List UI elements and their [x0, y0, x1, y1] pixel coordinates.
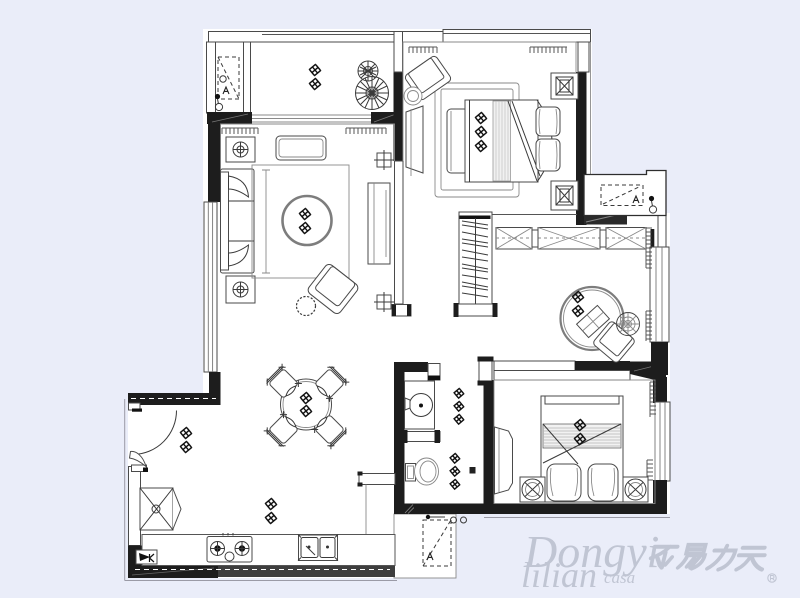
- svg-text:casa: casa: [604, 568, 635, 587]
- svg-text:lilian: lilian: [521, 555, 597, 595]
